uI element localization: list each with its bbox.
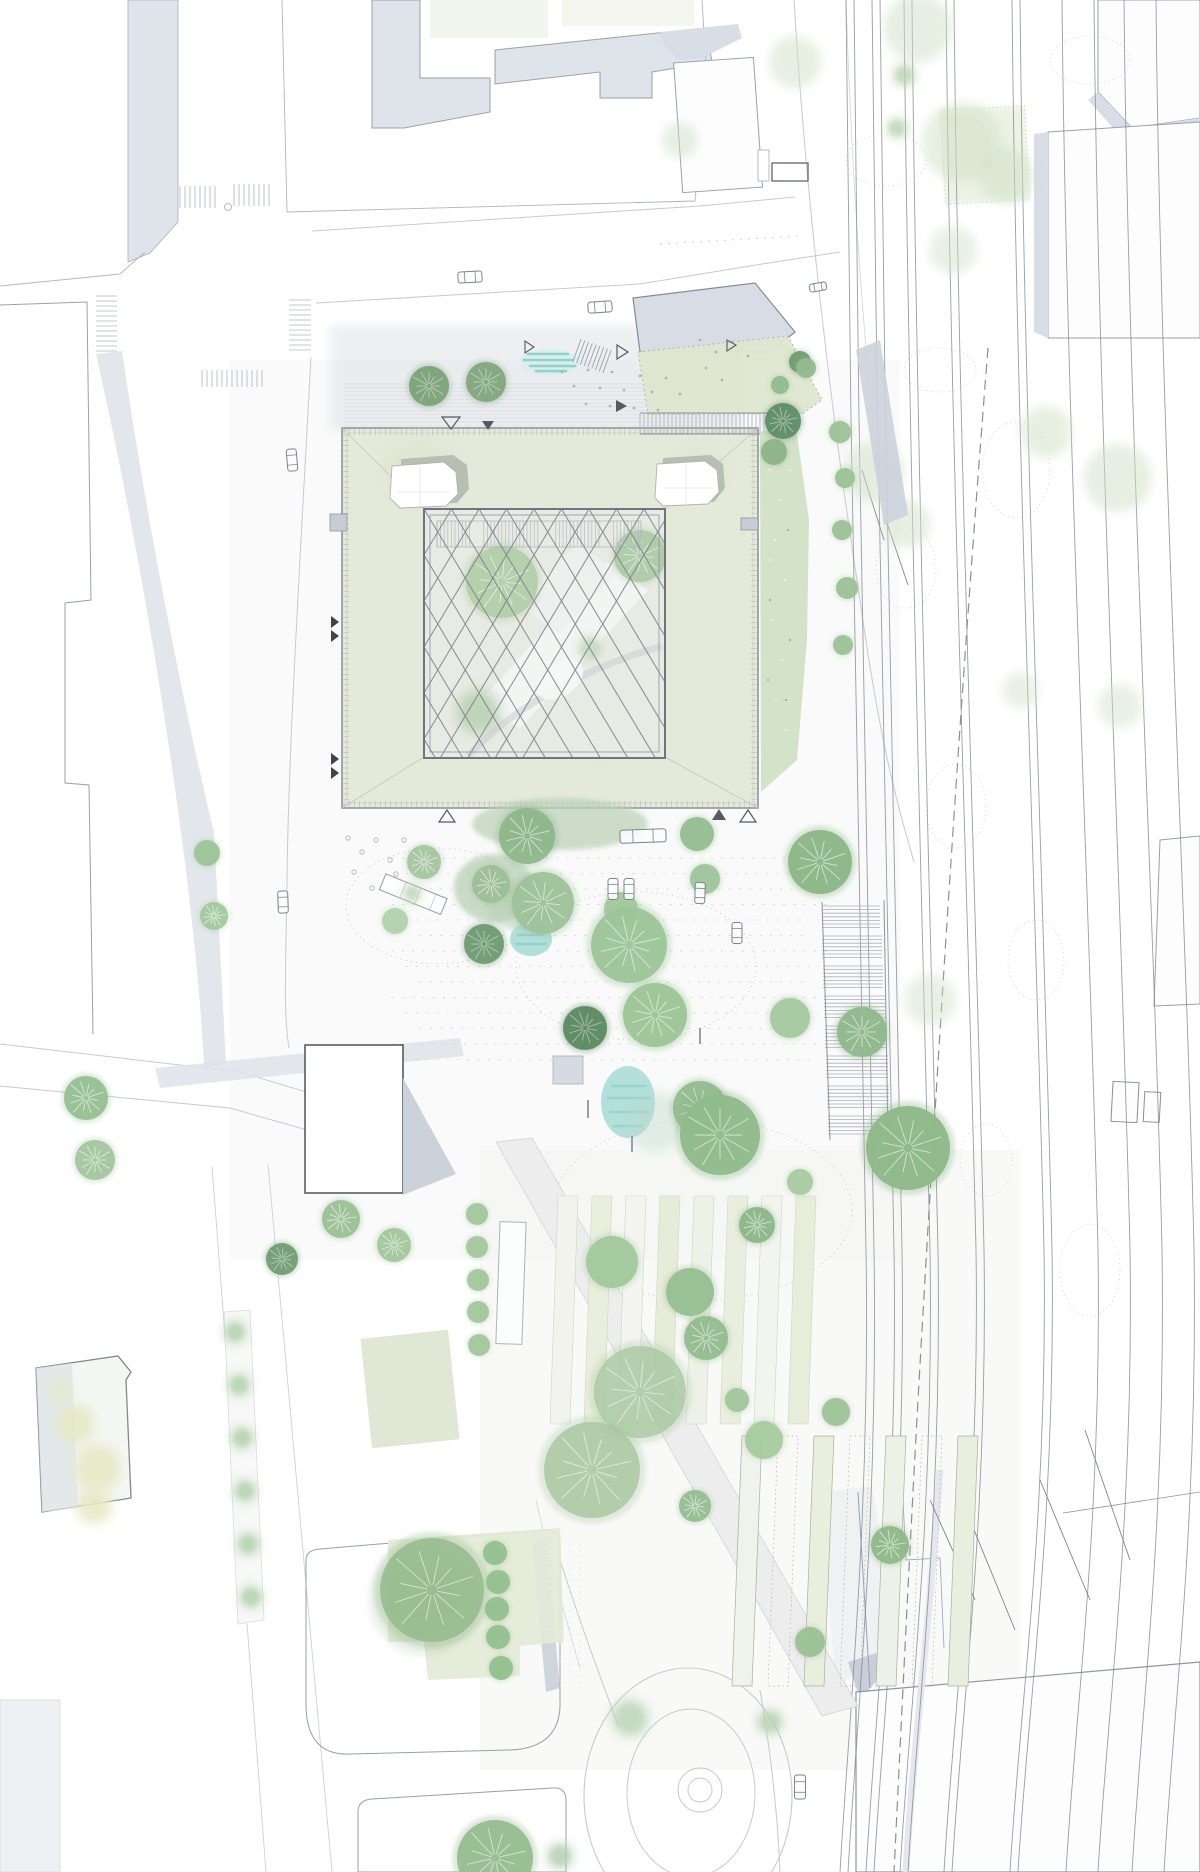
tree-canopy [489, 1656, 513, 1680]
tree-canopy [50, 1380, 70, 1400]
tree-canopy [486, 1570, 510, 1594]
tree [610, 1698, 650, 1738]
building-ne-b-band [1034, 132, 1048, 338]
tree-large [374, 1532, 490, 1648]
car [278, 891, 289, 913]
tree [785, 1167, 814, 1196]
vehicle-body [588, 301, 613, 314]
site-plan-svg: Landscape site plan [0, 0, 1200, 1872]
kiosk-outline [772, 163, 808, 181]
tree-canopy [266, 1243, 298, 1275]
tree-canopy [765, 403, 801, 439]
vehicle-body [624, 879, 634, 900]
site-plan: Landscape site plan [0, 0, 1200, 1872]
car [286, 449, 298, 472]
tree-canopy [788, 830, 852, 894]
vehicle-body [732, 923, 742, 944]
tree-canopy [227, 1324, 244, 1341]
tree-canopy [832, 520, 852, 540]
tree [737, 1205, 777, 1245]
tree [663, 1265, 717, 1319]
shrub-row [488, 1655, 515, 1682]
cafe-furniture-dots [561, 371, 564, 374]
tree-canopy [679, 1490, 711, 1522]
tree [375, 1226, 413, 1264]
veg-blob [978, 148, 1034, 204]
tree-canopy [486, 1625, 510, 1649]
tree-canopy [200, 902, 228, 930]
stair-east [822, 906, 880, 928]
switch [1085, 1430, 1130, 1560]
block-edge-nw [0, 252, 145, 286]
garden-wall [496, 1222, 526, 1345]
switch [1040, 1480, 1090, 1600]
tree-canopy [194, 840, 220, 866]
car [588, 301, 613, 314]
tree-canopy [405, 886, 419, 900]
tree-canopy [380, 1538, 484, 1642]
tree-canopy [64, 1076, 108, 1120]
tree-canopy [760, 1712, 780, 1732]
courtyard-green [562, 0, 694, 26]
strip-speckle [771, 619, 773, 621]
cafe-furniture-dots [611, 371, 614, 374]
shrub-row [466, 1300, 491, 1325]
strip-speckle [769, 469, 771, 471]
strip-speckle-dark [789, 639, 791, 641]
tree [678, 815, 716, 853]
cafe-furniture-dots [633, 407, 636, 410]
car [458, 271, 483, 283]
tree-large [675, 1090, 765, 1180]
cafe-furniture-dots [657, 409, 660, 412]
building-ne-b [1048, 122, 1200, 338]
crosswalk [180, 186, 215, 208]
tree-canopy [377, 1228, 411, 1262]
tree-canopy [771, 376, 789, 394]
tree [834, 1004, 890, 1060]
median-shrub [223, 1320, 247, 1344]
car [695, 882, 706, 903]
shrub-row [485, 1624, 512, 1651]
cafe-furniture-dots [747, 355, 750, 358]
median-shrub [227, 1373, 251, 1397]
pavilion-small [553, 1056, 583, 1084]
strip-speckle [789, 469, 791, 471]
tree-yellow [46, 1376, 74, 1404]
tree-canopy [466, 362, 506, 402]
tree-canopy [684, 1316, 728, 1360]
tree-canopy [591, 907, 667, 983]
tree-canopy [616, 1704, 644, 1732]
tree [869, 1524, 912, 1567]
vehicle-body [695, 882, 706, 903]
tree [834, 467, 856, 489]
kerb-top-road-north [312, 197, 795, 231]
vehicle-body [809, 282, 827, 293]
tree [681, 1313, 730, 1362]
tree-canopy [464, 924, 504, 964]
block-outline-west [0, 302, 93, 1034]
strip-speckle [785, 729, 787, 731]
tree-canopy [829, 421, 851, 443]
tree-canopy [237, 1483, 254, 1500]
tree-canopy [512, 872, 574, 934]
tree [795, 357, 817, 379]
tree-canopy [322, 1200, 360, 1238]
shrub-row [484, 1596, 511, 1623]
veg-blob [1098, 684, 1142, 728]
truck [620, 829, 666, 844]
tree-canopy [836, 577, 858, 599]
cafe-furniture-dots [721, 379, 724, 382]
tree-canopy [866, 1106, 950, 1190]
tree-canopy [680, 817, 714, 851]
tree-canopy [80, 1451, 115, 1486]
tree [546, 1842, 574, 1870]
tree-canopy [871, 1526, 909, 1564]
tree-canopy [81, 1493, 108, 1520]
cafe-furniture-dots [573, 385, 576, 388]
stair-east [822, 936, 882, 958]
stair-east [823, 966, 883, 988]
tree-canopy [466, 1203, 488, 1225]
car [624, 879, 634, 900]
strip-speckle [784, 579, 786, 581]
tree-canopy [483, 1541, 507, 1565]
vehicle-body [278, 891, 289, 913]
tree-dark [464, 360, 509, 405]
cafe-furniture-dots [599, 387, 602, 390]
tree-canopy [407, 845, 441, 879]
green-bed [360, 1330, 459, 1449]
tree-canopy [382, 908, 408, 934]
cafe-furniture-dots [705, 367, 708, 370]
tree-canopy [468, 1334, 490, 1356]
veg-contour [904, 348, 976, 392]
crosswalk [96, 296, 117, 351]
tree-canopy [75, 1140, 115, 1180]
shrub-row [467, 1333, 492, 1358]
street-tree [73, 1138, 118, 1183]
tree [770, 375, 790, 395]
tree [508, 868, 577, 937]
cafe-furniture-dots [585, 403, 588, 406]
veg-blob [904, 974, 956, 1026]
tree-canopy [467, 1301, 489, 1323]
cafe-furniture-dots [715, 351, 718, 354]
veg-blob [769, 36, 821, 88]
cafe-furniture-dots [587, 369, 590, 372]
tree-large [586, 902, 671, 987]
veg-contour [926, 764, 986, 848]
tree [470, 863, 513, 906]
rail-cross-line [1063, 1492, 1200, 1513]
cafe-furniture-dots [651, 391, 654, 394]
tree-canopy [725, 1388, 749, 1412]
building-stub [758, 150, 769, 181]
tree-canopy [485, 1597, 509, 1621]
tree-large [784, 826, 856, 898]
tree-canopy [60, 1409, 89, 1438]
strip-speckle [779, 499, 781, 501]
tree-canopy [243, 1589, 260, 1606]
tree-canopy [896, 67, 913, 84]
veg-blob [929, 226, 977, 274]
tree-large [619, 979, 691, 1051]
road-center-dash [660, 236, 800, 244]
tree-canopy [234, 1430, 251, 1447]
cafe-furniture-dots [639, 375, 642, 378]
car [809, 282, 827, 293]
tree [828, 420, 853, 445]
tree-canopy [623, 983, 687, 1047]
veg-blob [884, 0, 952, 62]
tree-canopy [499, 808, 555, 864]
tree-canopy [889, 120, 904, 135]
street-tree [198, 900, 229, 931]
tree-canopy [466, 546, 538, 618]
tree-dark [264, 1241, 300, 1277]
vehicle-body [795, 1775, 806, 1799]
sidewalk-band-west [96, 351, 226, 1068]
tree-canopy [795, 1627, 825, 1657]
courtyard-green [430, 0, 548, 38]
median-strip [224, 1310, 264, 1624]
crosswalk [234, 184, 269, 206]
street-tree [61, 1073, 110, 1122]
strip-speckle [775, 699, 777, 701]
tree-canopy [837, 1007, 887, 1057]
tree-canopy [614, 530, 666, 582]
tree-canopy [739, 1207, 775, 1243]
building-plaza-sw [305, 1045, 403, 1193]
tree [320, 1198, 363, 1241]
tree [820, 1396, 851, 1427]
shrub-row [482, 1540, 509, 1567]
roundabout-inner [678, 1768, 722, 1812]
tree [405, 843, 443, 881]
veg-blob [662, 122, 698, 158]
tree [496, 805, 559, 868]
tree-canopy [563, 1006, 607, 1050]
car [608, 879, 618, 900]
veg-blob [1002, 672, 1038, 708]
tree-yellow [75, 1487, 113, 1525]
roundabout-center [688, 1778, 712, 1802]
median-shrub [239, 1585, 263, 1609]
tree-yellow [72, 1443, 122, 1493]
tree [724, 1387, 751, 1414]
tree [832, 634, 854, 656]
tree [892, 63, 916, 87]
vehicle-body [458, 271, 483, 283]
tree-large [452, 1815, 537, 1872]
tree-large [538, 1416, 646, 1524]
tree-canopy [240, 1536, 257, 1553]
tree-canopy [550, 1846, 570, 1866]
tree [677, 1488, 713, 1524]
tree-canopy [231, 1377, 248, 1394]
garden-wall-slab [496, 1222, 526, 1345]
tree-canopy [761, 439, 787, 465]
tree-canopy [472, 865, 510, 903]
tree-canopy [835, 468, 855, 488]
manhole [225, 204, 232, 211]
car [732, 923, 742, 944]
strip-speckle-dark [785, 699, 787, 701]
median-shrub [236, 1532, 260, 1556]
strip-speckle-dark [767, 679, 769, 681]
tree-canopy [466, 1236, 488, 1258]
tree-canopy [467, 1269, 489, 1291]
strip-speckle [781, 659, 783, 661]
street-tree [192, 838, 221, 867]
tree [743, 1419, 786, 1462]
shrub-row [485, 1569, 512, 1596]
vehicle-body [620, 829, 666, 844]
strip-speckle-dark [787, 529, 789, 531]
vehicle-body [286, 449, 298, 472]
tree-dark [407, 364, 452, 409]
tree [583, 1233, 641, 1291]
crosswalk [289, 300, 311, 350]
tree [793, 1625, 827, 1659]
tree-canopy [680, 1095, 760, 1175]
tree [831, 519, 853, 541]
strip-speckle [774, 539, 776, 541]
vehicle-body [608, 879, 618, 900]
tree-dark [763, 401, 803, 441]
sw-corner-band [0, 1700, 60, 1872]
tree [768, 996, 813, 1041]
tree-yellow [54, 1403, 96, 1445]
shrub-row [465, 1235, 490, 1260]
tree-large [861, 1101, 955, 1195]
cafe-furniture-dots [623, 389, 626, 392]
roof-notch-east [741, 518, 758, 530]
cafe-furniture-dots [699, 339, 702, 342]
sidewalk-band-nw [128, 0, 178, 262]
skylight-east [655, 461, 719, 506]
tree [759, 437, 788, 466]
veg-contour [1060, 1224, 1120, 1316]
veg-blob [1084, 444, 1152, 512]
strip-speckle-dark [769, 599, 771, 601]
tree-canopy [409, 366, 449, 406]
tree [380, 906, 409, 935]
shrub-row [465, 1202, 490, 1227]
cafe-furniture-dots [665, 377, 668, 380]
stair-east [827, 1086, 889, 1108]
tree-canopy [770, 998, 810, 1038]
tree-canopy [833, 635, 853, 655]
skylight-west [390, 462, 458, 508]
building-east-edge [1154, 836, 1200, 1006]
roof-notch-west [330, 514, 347, 531]
median-shrub [233, 1479, 257, 1503]
tree-canopy [586, 1236, 638, 1288]
tree-dark [560, 1003, 609, 1052]
cafe-furniture-dots [609, 405, 612, 408]
tree-canopy [796, 358, 816, 378]
tree [835, 576, 860, 601]
median-shrub [230, 1426, 254, 1450]
cafe-furniture-dots [679, 393, 682, 396]
tree-canopy [544, 1422, 640, 1518]
car [795, 1775, 806, 1799]
tree-canopy [745, 1421, 783, 1459]
veg-blob [1020, 406, 1072, 458]
tree-dark [462, 922, 507, 967]
tree [886, 117, 908, 139]
tree [402, 883, 422, 903]
tree-canopy [822, 1398, 850, 1426]
tree [756, 1708, 784, 1736]
tree-canopy [787, 1169, 813, 1195]
shrub-row [466, 1268, 491, 1293]
tree-canopy [666, 1268, 714, 1316]
strip-speckle [769, 559, 771, 561]
